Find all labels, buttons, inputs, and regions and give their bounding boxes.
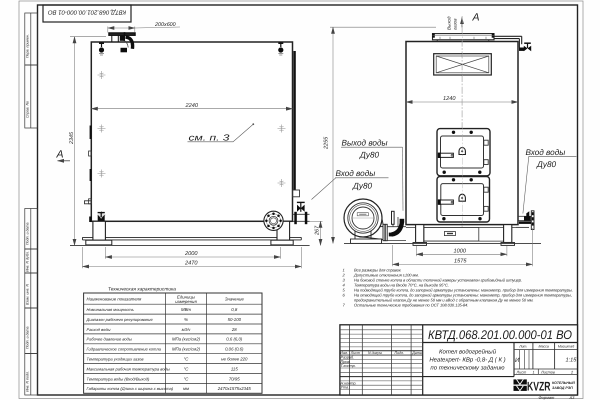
svg-text:0,6 (6,0): 0,6 (6,0) — [226, 337, 243, 342]
svg-text:МПа (кгс/см2): МПа (кгс/см2) — [172, 347, 201, 352]
svg-text:ЗАВОД РЭП: ЗАВОД РЭП — [552, 386, 573, 390]
svg-text:Температура воды (Вход/Выход): Температура воды (Вход/Выход) — [87, 376, 150, 381]
svg-text:Вход воды: Вход воды — [336, 169, 376, 178]
svg-text:Выход воды: Выход воды — [342, 138, 388, 147]
svg-text:КВТД.068.201.00.000-01 ВО: КВТД.068.201.00.000-01 ВО — [48, 9, 127, 16]
svg-text:не более 220: не более 220 — [221, 357, 248, 362]
svg-text:2470: 2470 — [184, 261, 198, 267]
svg-text:Диапазон рабочего регулировани: Диапазон рабочего регулирования — [86, 317, 154, 322]
svg-text:Значение: Значение — [225, 297, 244, 302]
svg-text:Выход: Выход — [447, 16, 452, 30]
svg-text:Наименование показателя: Наименование показателя — [87, 297, 143, 302]
svg-text:2470х1575х2345: 2470х1575х2345 — [217, 386, 252, 391]
svg-text:N докум.: N докум. — [368, 351, 383, 355]
svg-text:70/95: 70/95 — [229, 376, 240, 381]
svg-text:А3: А3 — [569, 395, 576, 400]
svg-text:МПа (кгс/см2): МПа (кгс/см2) — [172, 337, 201, 342]
svg-text:2000: 2000 — [184, 251, 198, 257]
svg-text:KVZR: KVZR — [527, 380, 551, 394]
svg-text:2255: 2255 — [324, 136, 330, 150]
svg-text:Справ. Nо: Справ. Nо — [26, 101, 30, 118]
svg-text:1240: 1240 — [443, 96, 456, 102]
svg-text:Утв.: Утв. — [341, 386, 350, 390]
svg-text:Ду80: Ду80 — [536, 160, 557, 169]
svg-text:Подп. и дата: Подп. и дата — [26, 327, 30, 350]
svg-text:Инв. N дубл.: Инв. N дубл. — [26, 251, 30, 272]
svg-text:%: % — [184, 317, 188, 322]
svg-text:200х600: 200х600 — [154, 22, 176, 28]
svg-text:Перв. примен.: Перв. примен. — [26, 34, 30, 58]
svg-text:1000: 1000 — [454, 249, 467, 255]
svg-text:50-100: 50-100 — [228, 317, 242, 322]
svg-text:Лит.: Лит. — [518, 345, 527, 349]
svg-text:Инв. N подл.: Инв. N подл. — [26, 371, 30, 392]
svg-text:Котел водогрейный: Котел водогрейный — [439, 349, 497, 356]
svg-text:Температура уходящих газов: Температура уходящих газов — [87, 357, 144, 362]
svg-text:Подп.: Подп. — [395, 351, 405, 355]
svg-text:А: А — [56, 149, 64, 161]
svg-text:Лист: Лист — [350, 351, 360, 355]
svg-text:КОТЕЛЬНЫЙ: КОТЕЛЬНЫЙ — [552, 380, 575, 385]
svg-text:Дата: Дата — [411, 351, 421, 355]
svg-text:Взам. инв. N: Взам. инв. N — [26, 284, 30, 305]
svg-text:115: 115 — [231, 366, 238, 371]
svg-text:1575: 1575 — [454, 259, 467, 265]
svg-text:Подп. и дата: Подп. и дата — [26, 223, 30, 246]
svg-text:Рабочее давление воды: Рабочее давление воды — [87, 337, 132, 342]
svg-text:Расход воды: Расход воды — [87, 327, 111, 332]
svg-text:мм: мм — [183, 386, 189, 391]
svg-text:Масштаб: Масштаб — [558, 345, 575, 349]
svg-text:Номинальная мощность: Номинальная мощность — [87, 307, 134, 312]
svg-text:Гидравлическое сопротивление к: Гидравлическое сопротивление котла — [87, 347, 162, 352]
svg-text:Вход воды: Вход воды — [526, 148, 566, 157]
svg-text:Ду80: Ду80 — [352, 181, 373, 190]
svg-text:Формат: Формат — [539, 395, 556, 400]
svg-text:измерения: измерения — [175, 299, 197, 304]
svg-text:1: 1 — [533, 370, 535, 374]
svg-text:Heatexpert- КВр -0,8- Д ( К ): Heatexpert- КВр -0,8- Д ( К ) — [429, 357, 505, 364]
svg-text:Габариты котла (Длина х ширина: Габариты котла (Длина х ширина х высота) — [87, 386, 174, 391]
svg-text:см. п. 3: см. п. 3 — [189, 132, 230, 142]
svg-text:Лист: Лист — [516, 370, 527, 374]
svg-text:А: А — [472, 12, 480, 24]
svg-text:Ду80: Ду80 — [359, 151, 380, 160]
svg-text:Масса: Масса — [539, 345, 549, 349]
svg-text:Остальные технические требован: Остальные технические требования по ОСТ … — [354, 303, 468, 308]
svg-text:Листов: Листов — [540, 370, 555, 374]
svg-text:0,8: 0,8 — [231, 307, 238, 312]
svg-text:И: И — [515, 357, 520, 364]
svg-text:2345: 2345 — [69, 131, 75, 145]
svg-text:2240: 2240 — [185, 103, 199, 109]
svg-text:Т.контр.: Т.контр. — [341, 364, 356, 368]
svg-text:Техническая характеристика: Техническая характеристика — [108, 287, 176, 293]
svg-text:28: 28 — [231, 327, 237, 332]
svg-text:267: 267 — [315, 225, 321, 236]
svg-text:Изм.: Изм. — [340, 351, 348, 355]
svg-text:0,06 (0,6): 0,06 (0,6) — [225, 347, 244, 352]
svg-text:МВт: МВт — [181, 307, 191, 312]
svg-text:1:15: 1:15 — [566, 358, 578, 364]
svg-text:м3/ч: м3/ч — [182, 327, 192, 332]
svg-text:КВТД.068.201.00.000-01 ВО: КВТД.068.201.00.000-01 ВО — [428, 328, 572, 342]
svg-text:газов: газов — [453, 18, 458, 30]
svg-text:по техническому заданию: по техническому заданию — [430, 365, 505, 372]
svg-text:Максимальная рабочая температу: Максимальная рабочая температура воды — [87, 366, 170, 371]
